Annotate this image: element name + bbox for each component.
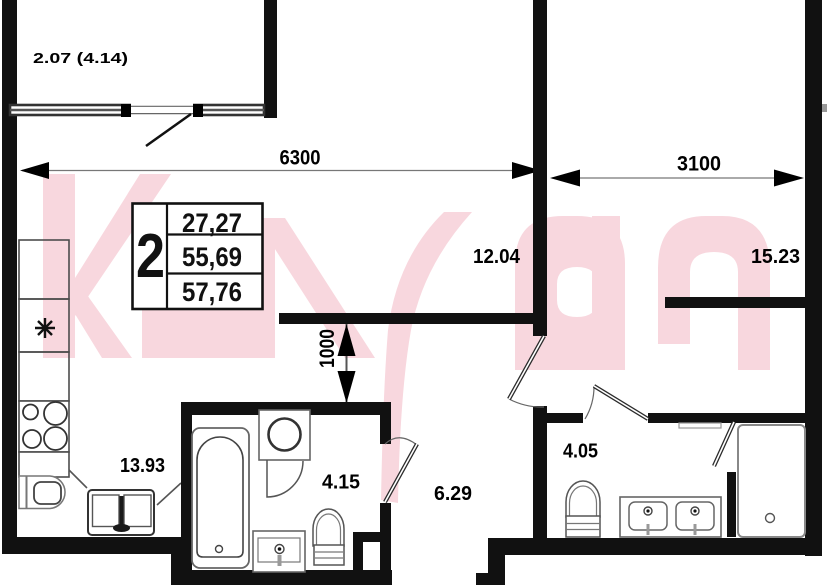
- svg-text:1000: 1000: [315, 329, 339, 368]
- svg-text:3100: 3100: [677, 152, 721, 176]
- svg-text:2: 2: [136, 222, 165, 291]
- svg-text:4.05: 4.05: [563, 441, 598, 463]
- svg-text:55,69: 55,69: [182, 242, 242, 272]
- svg-text:57,76: 57,76: [182, 277, 242, 307]
- svg-text:27,27: 27,27: [182, 208, 242, 238]
- svg-text:6300: 6300: [280, 146, 321, 170]
- svg-text:13.93: 13.93: [120, 455, 165, 477]
- svg-text:6.29: 6.29: [434, 483, 472, 505]
- svg-text:15.23: 15.23: [751, 246, 800, 268]
- svg-text:12.04: 12.04: [473, 246, 521, 268]
- svg-text:2.07 (4.14): 2.07 (4.14): [33, 50, 128, 67]
- svg-text:4.15: 4.15: [322, 472, 360, 494]
